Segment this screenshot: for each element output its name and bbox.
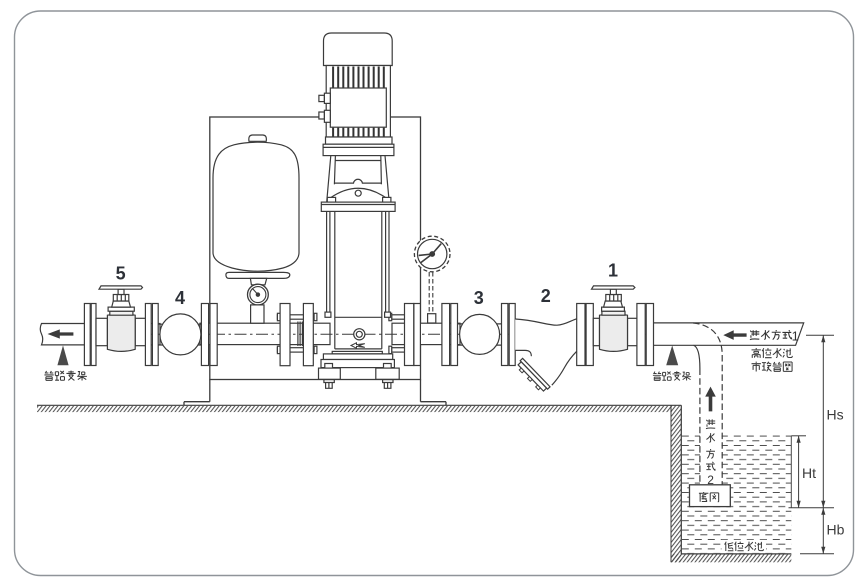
svg-text:1: 1 bbox=[792, 329, 799, 344]
svg-text:Hs: Hs bbox=[827, 406, 844, 422]
svg-text:Hb: Hb bbox=[827, 522, 845, 538]
svg-text:1: 1 bbox=[608, 260, 618, 280]
svg-text:5: 5 bbox=[116, 263, 126, 283]
svg-text:2: 2 bbox=[541, 286, 551, 306]
svg-text:2: 2 bbox=[707, 473, 714, 487]
svg-text:Ht: Ht bbox=[802, 465, 816, 481]
svg-text:3: 3 bbox=[474, 288, 484, 308]
svg-text:4: 4 bbox=[175, 288, 185, 308]
